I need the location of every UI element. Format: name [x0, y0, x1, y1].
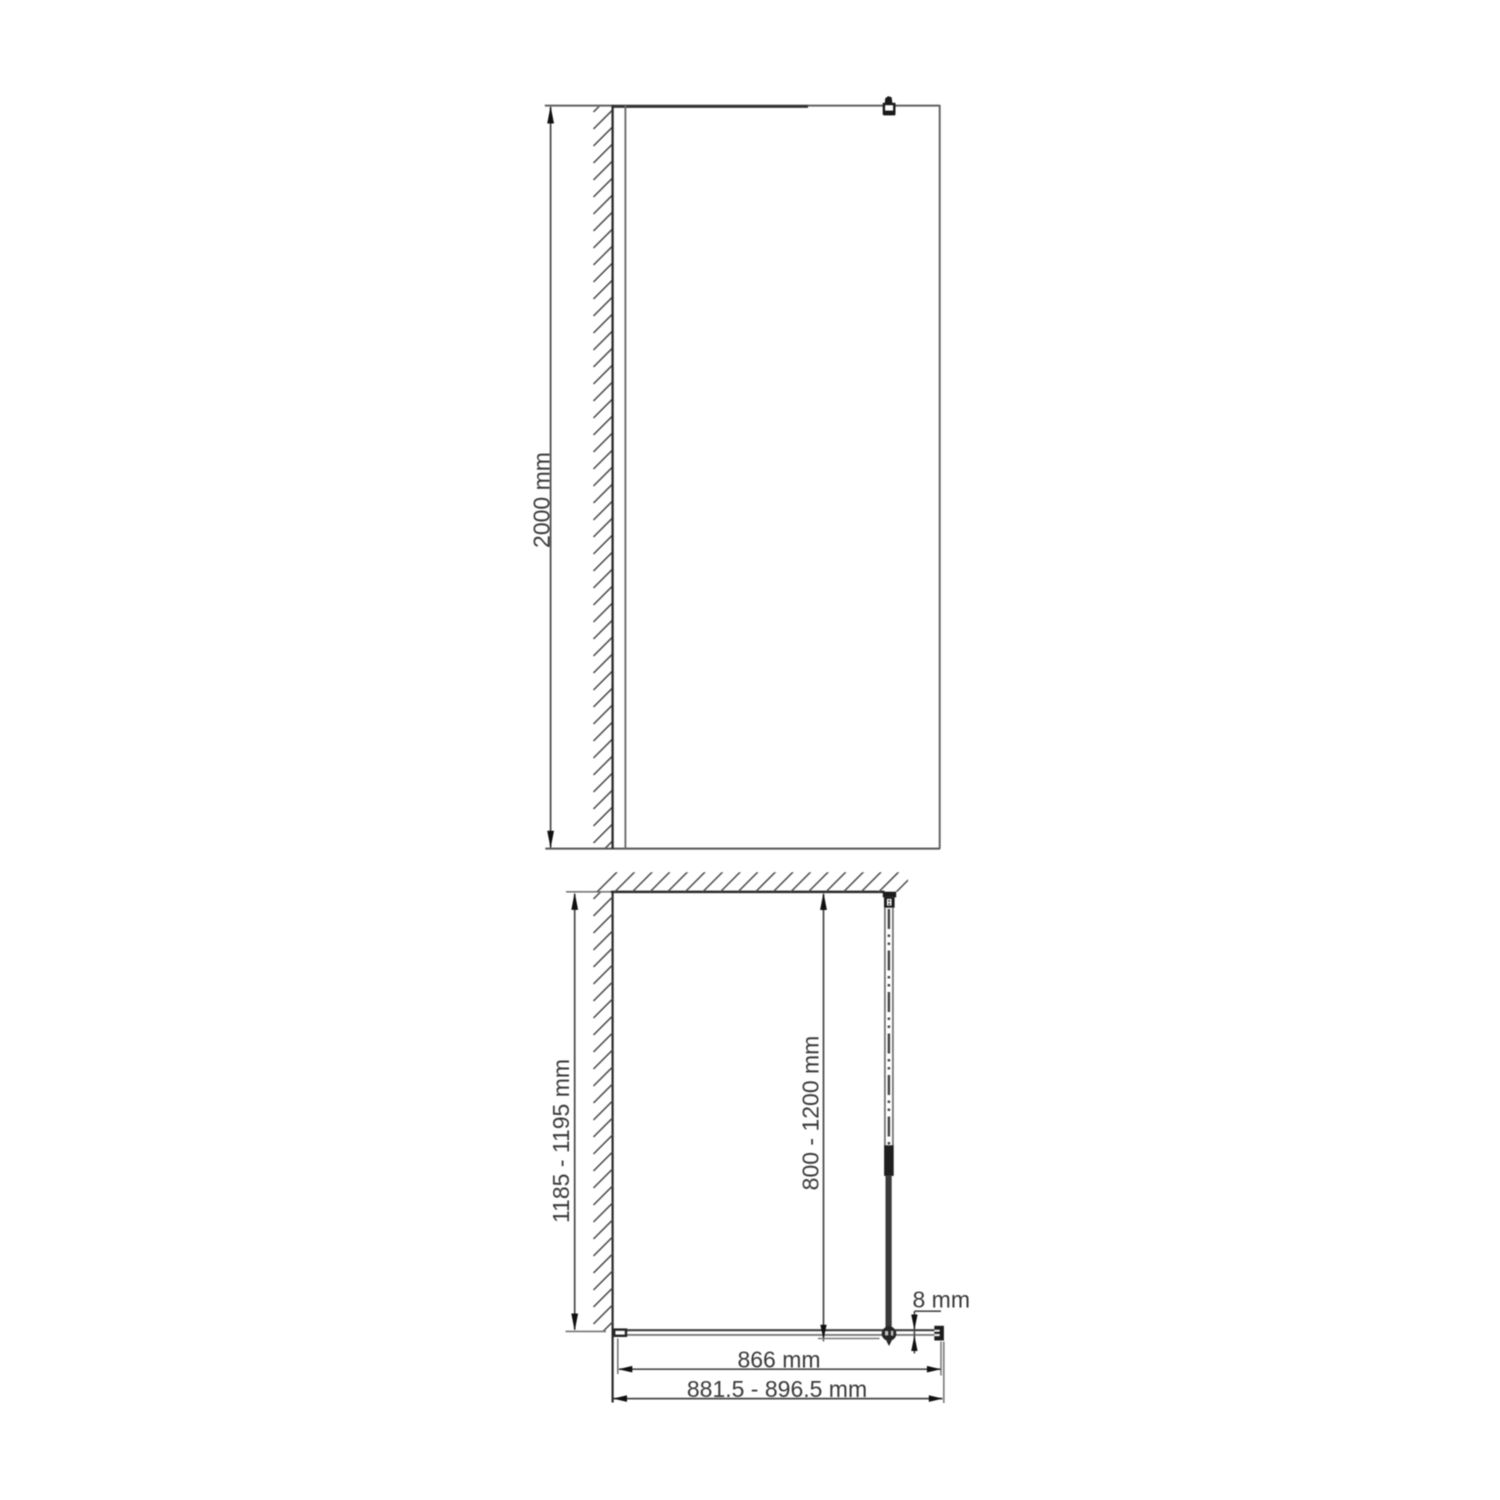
svg-text:800 - 1200 mm: 800 - 1200 mm — [798, 1036, 824, 1191]
svg-text:2000 mm: 2000 mm — [529, 452, 555, 548]
svg-text:866 mm: 866 mm — [737, 1346, 820, 1372]
svg-text:1185 - 1195 mm: 1185 - 1195 mm — [548, 1059, 574, 1223]
svg-text:881.5 - 896.5 mm: 881.5 - 896.5 mm — [687, 1376, 867, 1402]
svg-text:8 mm: 8 mm — [913, 1287, 971, 1313]
